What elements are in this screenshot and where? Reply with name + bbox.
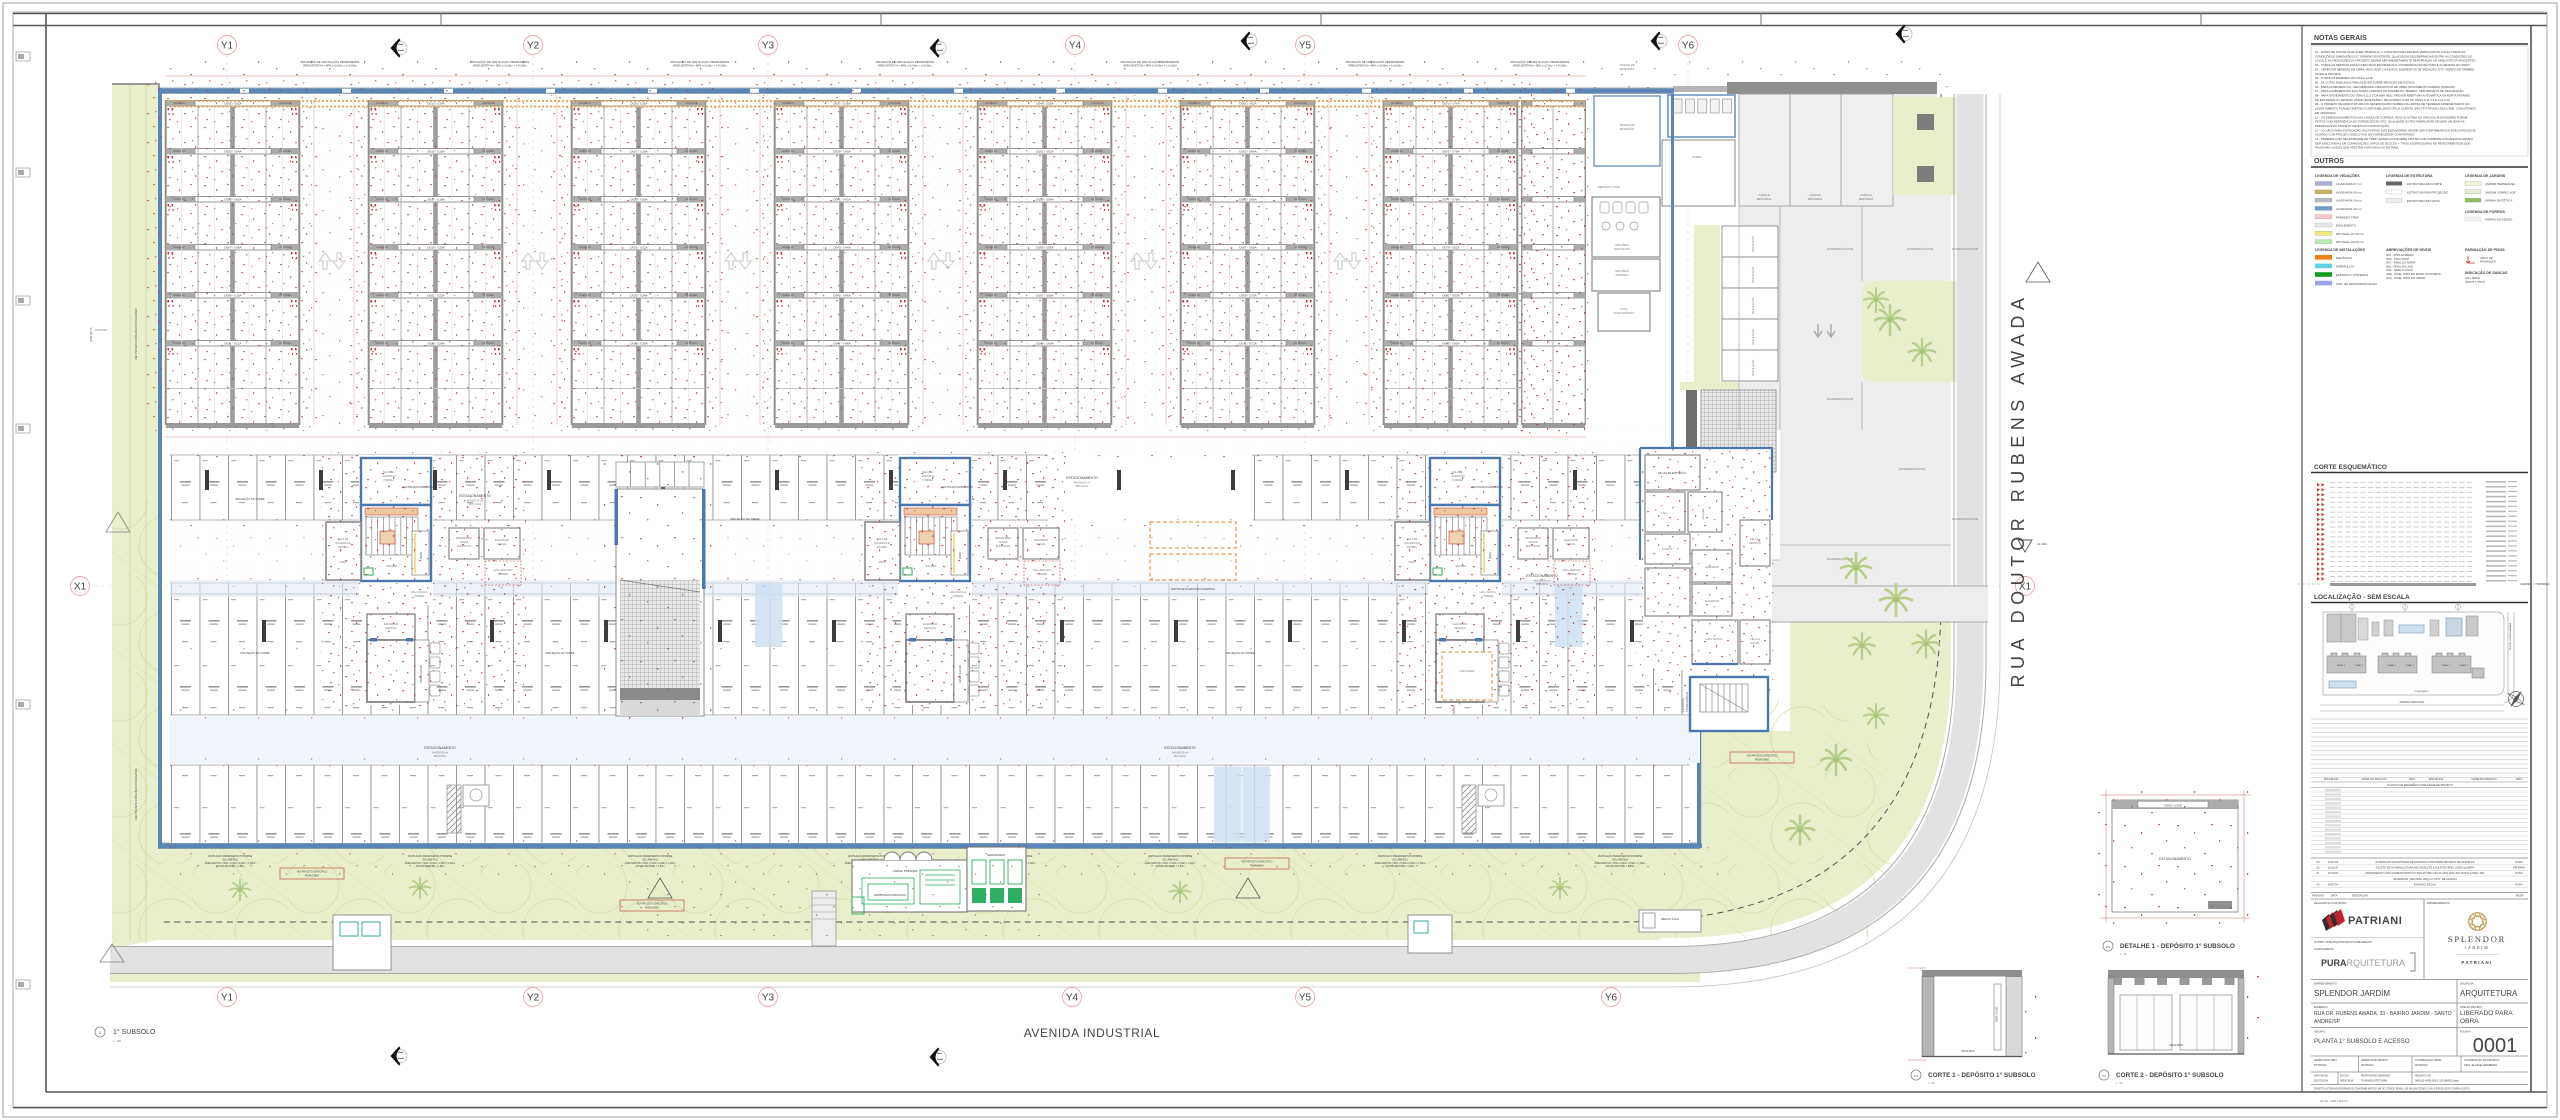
- svg-text:AVENIDA INDUSTRIAL: AVENIDA INDUSTRIAL: [1024, 1026, 1161, 1040]
- svg-text:20/07/2024: 20/07/2024: [2314, 1079, 2328, 1083]
- svg-text:D065 / U66A: D065 / U66A: [1239, 198, 1256, 202]
- svg-text:ESTACIONAMENTO: ESTACIONAMENTO: [1164, 746, 1196, 750]
- svg-text:D075 / U76A: D075 / U76A: [1442, 150, 1459, 154]
- svg-text:ESTACIONAMENTO: ESTACIONAMENTO: [424, 746, 456, 750]
- svg-text:(NM) - NÍVEL TOPO DO MURO OU M: (NM) - NÍVEL TOPO DO MURO OU MURETA: [2386, 272, 2441, 276]
- svg-text:N=1660,00 m²: N=1660,00 m²: [432, 750, 449, 754]
- svg-text:D045 / U46A: D045 / U46A: [833, 294, 850, 298]
- svg-text:SIST. DE DESUMIDIFICAÇÃO: SIST. DE DESUMIDIFICAÇÃO: [2336, 281, 2378, 286]
- svg-text:MASCULINO: MASCULINO: [1614, 247, 1629, 251]
- svg-text:A1 1000: A1 1000: [2037, 542, 2047, 546]
- svg-text:DATA INICIAL: DATA INICIAL: [2314, 1075, 2329, 1078]
- svg-text:D063 / U64A: D063 / U64A: [1239, 150, 1256, 154]
- svg-text:DESCARGA: DESCARGA: [1757, 197, 1772, 201]
- svg-text:RUA DR. RUBENS AWADA, 33 - BAI: RUA DR. RUBENS AWADA, 33 - BAIRRO JARDIM…: [2314, 1011, 2452, 1017]
- svg-text:D033 / U34A: D033 / U34A: [630, 294, 647, 298]
- svg-text:ELÉTRICA / SISTEMAS: ELÉTRICA / SISTEMAS: [2336, 272, 2368, 277]
- svg-text:Y3: Y3: [762, 993, 775, 1004]
- svg-text:RESPONSÁVEL/DESENHO: RESPONSÁVEL/DESENHO: [2361, 1075, 2390, 1078]
- svg-text:(NT) - NÍVEL DA TERRA: (NT) - NÍVEL DA TERRA: [2386, 261, 2416, 265]
- svg-text:N=1660,00 m²: N=1660,00 m²: [1172, 750, 1189, 754]
- svg-text:CARGA E: CARGA E: [1809, 193, 1821, 197]
- svg-text:0001: 0001: [2473, 1035, 2518, 1057]
- svg-text:Y5: Y5: [1299, 993, 1312, 1004]
- svg-text:FINAL 2: FINAL 2: [2355, 664, 2364, 667]
- svg-text:05 - AS COTAS INDICADAS PREVAL: 05 - AS COTAS INDICADAS PREVALECEM SOBRE…: [2315, 79, 2415, 84]
- svg-text:(NG) - NÍVEL TOPO DO GRADIL: (NG) - NÍVEL TOPO DO GRADIL: [2386, 276, 2426, 280]
- svg-text:D031 / U32A: D031 / U32A: [630, 246, 647, 250]
- svg-text:DATA: DATA: [2409, 777, 2416, 781]
- svg-text:1 : 100: 1 : 100: [113, 1039, 121, 1043]
- svg-text:OUTROS: OUTROS: [2314, 158, 2344, 165]
- svg-text:08 - PARA ATENDIMENTO DO ITEM: 08 - PARA ATENDIMENTO DO ITEM 6.11.2.2 D…: [2315, 93, 2470, 98]
- svg-text:AUTORIA: WISE ARQUITETURA E P: AUTORIA: WISE ARQUITETURA E PLANEJAMENTO: [2314, 941, 2372, 944]
- svg-text:EMPREENDIMENTO: EMPREENDIMENTO: [2427, 902, 2450, 905]
- svg-text:SPLENDOR JARDIM: SPLENDOR JARDIM: [2314, 989, 2390, 998]
- svg-text:CARGA E: CARGA E: [1860, 193, 1872, 197]
- svg-text:D035 / U36A: D035 / U36A: [630, 342, 647, 346]
- svg-text:PLANTA 1° SUBSOLO E ACESSO: PLANTA 1° SUBSOLO E ACESSO: [2314, 1038, 2410, 1045]
- svg-text:ANDRÉ/SP: ANDRÉ/SP: [2314, 1018, 2341, 1025]
- svg-text:D017 / U18A: D017 / U18A: [427, 198, 444, 202]
- svg-text:DISCIPLINA: DISCIPLINA: [2460, 983, 2474, 986]
- svg-text:D053 / U54A: D053 / U54A: [1036, 198, 1053, 202]
- svg-text:ARQ. ELAINE GRINBERG: ARQ. ELAINE GRINBERG: [2464, 1063, 2497, 1067]
- svg-text:D041 / U42A: D041 / U42A: [833, 198, 850, 202]
- svg-text:D025 / U26A: D025 / U26A: [630, 102, 647, 106]
- svg-text:COORDENAÇÃO DA DISCIPLINA: COORDENAÇÃO DA DISCIPLINA: [2464, 1059, 2500, 1062]
- svg-text:DESCARGA: DESCARGA: [1808, 197, 1823, 201]
- svg-text:PURA: PURA: [2515, 871, 2523, 875]
- svg-text:C2: C2: [2102, 1074, 2106, 1078]
- svg-text:(NL) - NÍVEL DA LAJE: (NL) - NÍVEL DA LAJE: [2386, 264, 2413, 268]
- svg-text:PAREDES TRNF: PAREDES TRNF: [2336, 215, 2359, 219]
- svg-text:D019 / U20A: D019 / U20A: [427, 246, 444, 250]
- svg-text:ARQUIVO CAD: ARQUIVO CAD: [2415, 1075, 2431, 1078]
- svg-text:Y2: Y2: [527, 993, 540, 1004]
- svg-text:PATRIANI: PATRIANI: [2361, 1063, 2374, 1067]
- svg-text:JARDIM SOBRE LAJE: JARDIM SOBRE LAJE: [2485, 190, 2516, 194]
- svg-text:PD=3,10m: PD=3,10m: [1174, 754, 1186, 758]
- svg-text:D039 / U40A: D039 / U40A: [833, 150, 850, 154]
- svg-text:D029 / U30A: D029 / U30A: [630, 198, 647, 202]
- svg-text:03 - VERIFICAR MEDIDAS EM OBRA: 03 - VERIFICAR MEDIDAS EM OBRA, INCLUSIV…: [2315, 66, 2474, 71]
- svg-text:ENCHIMENTO: ENCHIMENTO: [2336, 224, 2357, 228]
- svg-text:(largura x altura): (largura x altura): [2465, 280, 2485, 284]
- svg-text:FUNCIONÁRIOS: FUNCIONÁRIOS: [1614, 311, 1634, 315]
- svg-text:ESTRUTURA EM CORTE: ESTRUTURA EM CORTE: [2407, 182, 2442, 186]
- svg-text:D003 / U04A: D003 / U04A: [224, 150, 241, 154]
- svg-text:PATRIANI: PATRIANI: [2415, 1063, 2428, 1067]
- svg-text:07/10/24: 07/10/24: [2328, 871, 2339, 875]
- svg-text:EMPREENDIMENTO: EMPREENDIMENTO: [2314, 983, 2337, 986]
- svg-text:D009 / U10A: D009 / U10A: [224, 294, 241, 298]
- svg-text:A0 zap - 1682 x 841mm: A0 zap - 1682 x 841mm: [2320, 1099, 2348, 1103]
- svg-text:Y6: Y6: [1682, 41, 1695, 52]
- svg-text:DRYWALL 09,20 cm: DRYWALL 09,20 cm: [2336, 240, 2364, 244]
- svg-text:(PO) - PISO OSSO: (PO) - PISO OSSO: [2386, 257, 2409, 261]
- svg-text:PREMISSAS DO PROJETO ANTES DA: PREMISSAS DO PROJETO ANTES DA CONTRATAÇÃ…: [2315, 123, 2390, 128]
- svg-text:Y1: Y1: [221, 993, 234, 1004]
- svg-text:02: 02: [2317, 866, 2320, 870]
- svg-text:Y5: Y5: [1299, 41, 1312, 52]
- svg-text:NOME DO ARQUIVO: NOME DO ARQUIVO: [2472, 777, 2497, 781]
- svg-text:ALVENARIA 19 cm: ALVENARIA 19 cm: [2336, 207, 2362, 211]
- svg-text:ÁREA EFETIVA = MÍN L=2,60m + L: ÁREA EFETIVA = MÍN L=2,60m + L=2,60m: [673, 64, 727, 68]
- svg-text:Y4: Y4: [1066, 993, 1079, 1004]
- svg-text:FOLHA Nº: FOLHA Nº: [2460, 1030, 2471, 1034]
- svg-text:HIDRÁULICA: HIDRÁULICA: [2336, 265, 2354, 269]
- svg-text:DRYWALL 07,20 cm: DRYWALL 07,20 cm: [2336, 232, 2364, 236]
- svg-text:D001 / U02A: D001 / U02A: [224, 102, 241, 106]
- svg-text:LEGENDA DE VEDAÇÕES: LEGENDA DE VEDAÇÕES: [2315, 173, 2360, 178]
- svg-text:D067 / U68A: D067 / U68A: [1239, 246, 1256, 250]
- svg-text:FINAL 2: FINAL 2: [2460, 664, 2469, 667]
- svg-text:11/01/25: 11/01/25: [2328, 866, 2339, 870]
- svg-text:VESTIÁRIO: VESTIÁRIO: [1615, 269, 1629, 273]
- svg-text:ENDEREÇO: ENDEREÇO: [2314, 1006, 2328, 1009]
- svg-text:04 - TODAS AS PAREDES VÃO ATÉ: 04 - TODAS AS PAREDES VÃO ATÉ A LAJE.: [2315, 75, 2374, 80]
- svg-text:FINAL 1: FINAL 1: [2388, 664, 2397, 667]
- svg-text:11 - OS VÃOS PARA INSTALAÇÃO D: 11 - OS VÃOS PARA INSTALAÇÃO DAS PORTAS …: [2315, 127, 2476, 132]
- svg-text:PURA: PURA: [2515, 882, 2523, 886]
- svg-text:FORRO DE GESSO: FORRO DE GESSO: [2485, 218, 2513, 222]
- svg-text:ÁREA EFETIVA = MÍN L=2,60m + L: ÁREA EFETIVA = MÍN L=2,60m + L=2,60m: [473, 64, 527, 68]
- svg-text:D073 / U74A: D073 / U74A: [1442, 102, 1459, 106]
- svg-text:PURA: PURA: [2515, 860, 2523, 864]
- svg-text:DIREITOS AUTORAIS RESERVADOS C: DIREITOS AUTORAIS RESERVADOS CONFORME AR…: [2314, 1088, 2471, 1091]
- svg-text:VESTIÁRIO: VESTIÁRIO: [1615, 243, 1629, 247]
- svg-text:Y4: Y4: [1069, 41, 1082, 52]
- svg-text:ASSUNTO: ASSUNTO: [2314, 1031, 2326, 1034]
- svg-text:RUA DR. RUBENS AWADA: RUA DR. RUBENS AWADA: [2509, 623, 2512, 650]
- svg-text:ALVENARIA 14 cm: ALVENARIA 14 cm: [2336, 199, 2362, 203]
- svg-text:D057 / U58A: D057 / U58A: [1036, 294, 1053, 298]
- svg-text:A/4 e 900x/h: A/4 e 900x/h: [2465, 276, 2481, 280]
- svg-text:CONDOMÍNIO: CONDOMÍNIO: [2414, 690, 2429, 693]
- svg-text:VAGA BOX: VAGA BOX: [2169, 1043, 2183, 1047]
- svg-text:D049 / U50A: D049 / U50A: [1036, 102, 1053, 106]
- svg-text:REALIZADO E CONSTRUÍDO: REALIZADO E CONSTRUÍDO: [2314, 902, 2347, 905]
- svg-text:D083 / U05A: D083 / U05A: [1442, 342, 1459, 346]
- svg-text:VER PROJETO ESPECÍFICO PAISAGI: VER PROJETO ESPECÍFICO PAISAGISMO: [134, 768, 138, 820]
- svg-text:ÁREA EFETIVA = MÍN L=2,60m + L: ÁREA EFETIVA = MÍN L=2,60m + L=2,60m: [1348, 64, 1402, 68]
- svg-text:FINAL 1: FINAL 1: [2442, 664, 2451, 667]
- svg-text:D055 / U56A: D055 / U56A: [1036, 246, 1053, 250]
- svg-text:NOTAS GERAIS: NOTAS GERAIS: [2314, 35, 2367, 42]
- svg-text:SPLENDOR: SPLENDOR: [2448, 934, 2506, 944]
- svg-text:FASE DO PROJETO: FASE DO PROJETO: [2460, 1006, 2482, 1009]
- svg-text:CORTE ESQUEMÁTICO: CORTE ESQUEMÁTICO: [2314, 462, 2387, 471]
- svg-text:D071 / U72A: D071 / U72A: [1239, 342, 1256, 346]
- svg-text:LEVANTAMENTO PLANALTIMÉTRICO D: LEVANTAMENTO PLANALTIMÉTRICO DISPONIBILI…: [2315, 106, 2477, 111]
- svg-text:D007 / U08A: D007 / U08A: [224, 246, 241, 250]
- svg-text:PURARQUITETURA: PURARQUITETURA: [2361, 1079, 2387, 1083]
- svg-text:1° SUBSOLO: 1° SUBSOLO: [113, 1028, 156, 1036]
- svg-text:AVENIDA INDUSTRIAL: AVENIDA INDUSTRIAL: [2399, 701, 2425, 704]
- svg-text:Y3: Y3: [762, 41, 775, 52]
- svg-text:FINAL 2: FINAL 2: [2406, 664, 2415, 667]
- svg-text:PATRIANI: PATRIANI: [2461, 960, 2492, 965]
- svg-text:LEGENDA DE FORROS: LEGENDA DE FORROS: [2465, 210, 2505, 214]
- svg-text:D043 / U44A: D043 / U44A: [833, 246, 850, 250]
- svg-text:LICENCIAMENTO: LICENCIAMENTO: [2314, 948, 2334, 951]
- svg-text:OBRA: OBRA: [2460, 1018, 2479, 1025]
- svg-text:ESTRUTURA EM VISTA: ESTRUTURA EM VISTA: [2407, 199, 2440, 203]
- svg-text:PD=3,10m: PD=3,10m: [434, 754, 446, 758]
- svg-text:ESTRUTURA EM PROJEÇÃO: ESTRUTURA EM PROJEÇÃO: [2407, 190, 2449, 195]
- svg-text:(PA) - PISO ACABADO: (PA) - PISO ACABADO: [2386, 253, 2414, 257]
- svg-text:CORTE 1 - DEPÓSITO 1° SUBSOLO: CORTE 1 - DEPÓSITO 1° SUBSOLO: [1928, 1070, 2036, 1079]
- svg-text:FEITOS COM REFERÊNCIA NO FORNE: FEITOS COM REFERÊNCIA NO FORNECEDOR OTIS…: [2315, 119, 2464, 124]
- svg-text:1 : 50: 1 : 50: [1928, 1081, 1935, 1085]
- svg-text:ÁREA EFETIVA = MÍN L=2,60m + L: ÁREA EFETIVA = MÍN L=2,60m + L=2,60m: [303, 64, 357, 68]
- svg-text:D077 / U78A: D077 / U78A: [1442, 198, 1459, 202]
- svg-text:RUA DOUTOR RUBENS AWADA: RUA DOUTOR RUBENS AWADA: [2008, 293, 2028, 688]
- svg-text:DESCARGA: DESCARGA: [1859, 197, 1874, 201]
- svg-text:D027 / U28A: D027 / U28A: [630, 150, 647, 154]
- svg-text:GRAMA SINTÉTICA: GRAMA SINTÉTICA: [2485, 198, 2512, 203]
- svg-text:D040 / U21B: D040 / U21B: [1995, 1007, 1999, 1022]
- svg-text:D021 / U22A: D021 / U22A: [427, 294, 444, 298]
- svg-text:(NA) - NÍVEL D´ÁGUA: (NA) - NÍVEL D´ÁGUA: [2386, 268, 2413, 272]
- svg-text:CORTE 2 - DEPÓSITO 1° SUBSOLO: CORTE 2 - DEPÓSITO 1° SUBSOLO: [2116, 1070, 2224, 1079]
- svg-text:ESCADA DE: ESCADA DE: [1682, 698, 1685, 712]
- svg-text:D079 / U01A: D079 / U01A: [1442, 246, 1459, 250]
- svg-text:(NM) 745,75: (NM) 745,75: [89, 327, 93, 342]
- svg-text:D051 / U52A: D051 / U52A: [1036, 150, 1053, 154]
- svg-text:ARQUITETURA: ARQUITETURA: [2460, 989, 2518, 998]
- svg-text:LOCAL E AS INDICAÇÕES DO PROJE: LOCAL E AS INDICAÇÕES DO PROJETO DEVEM S…: [2315, 58, 2476, 63]
- svg-text:ABREVIAÇÕES DE NÍVEIS: ABREVIAÇÕES DE NÍVEIS: [2386, 247, 2432, 252]
- svg-text:FINAL 1: FINAL 1: [2337, 664, 2346, 667]
- svg-text:06 - PARA ACABAMENTOS, VER MEM: 06 - PARA ACABAMENTOS, VER MEMORIAL DESC…: [2315, 84, 2456, 89]
- svg-text:D1: D1: [2106, 945, 2110, 949]
- svg-text:00: 00: [2317, 882, 2320, 886]
- svg-text:N=1660,00 m²: N=1660,00 m²: [1074, 480, 1091, 484]
- svg-text:Y2: Y2: [527, 41, 540, 52]
- svg-text:JARDIM PERMEÁVEL: JARDIM PERMEÁVEL: [2485, 182, 2516, 186]
- svg-text:040-LD-ARQ-0001-1SUB-R05.dwg: 040-LD-ARQ-0001-1SUB-R05.dwg: [2415, 1079, 2459, 1083]
- svg-text:DATA: DATA: [2516, 777, 2523, 781]
- svg-text:AJUSTE DE NOMENCLATURA DE CAVA: AJUSTE DE NOMENCLATURA DE CAVALETE E AJU…: [2376, 866, 2475, 870]
- svg-text:PURARQUITETURA: PURARQUITETURA: [2321, 958, 2405, 968]
- svg-text:FEMININO: FEMININO: [1616, 273, 1629, 277]
- svg-text:COORDENAÇÃO GERAL: COORDENAÇÃO GERAL: [2415, 1059, 2442, 1062]
- svg-text:ESTACIONAMENTO: ESTACIONAMENTO: [1066, 476, 1098, 480]
- svg-text:D059 / U60A: D059 / U60A: [1036, 342, 1053, 346]
- svg-text:1 : 50: 1 : 50: [2120, 952, 2127, 956]
- svg-text:DISCIPLINA: DISCIPLINA: [2429, 777, 2444, 781]
- svg-text:NOME DO ARQUIVO: NOME DO ARQUIVO: [2362, 777, 2387, 781]
- svg-text:CONDIÇÕES E DIMENSÕES DO TERRE: CONDIÇÕES E DIMENSÕES DO TERRENO EXISTEN…: [2315, 53, 2473, 58]
- svg-text:GERÊNCIA DE OBRA: GERÊNCIA DE OBRA: [2314, 1059, 2337, 1062]
- svg-text:PATRIANI: PATRIANI: [2348, 915, 2402, 927]
- svg-text:X1: X1: [74, 582, 87, 593]
- svg-text:01: 01: [2317, 871, 2320, 875]
- svg-text:DETALHE 1 - DEPÓSITO 1° SUBSOL: DETALHE 1 - DEPÓSITO 1° SUBSOLO: [2120, 941, 2235, 950]
- svg-text:LIBERADO PARA: LIBERADO PARA: [2460, 1010, 2513, 1017]
- svg-text:LIXEIRA: LIXEIRA: [1692, 155, 1702, 159]
- svg-text:PAGINAÇÃO DE PISOS: PAGINAÇÃO DE PISOS: [2465, 247, 2505, 252]
- svg-text:LEGENDA DE JARDINS: LEGENDA DE JARDINS: [2465, 174, 2506, 178]
- svg-text:ABRIGO ÁGUA: ABRIGO ÁGUA: [1661, 917, 1679, 921]
- svg-text:DATA: DATA: [2331, 894, 2338, 898]
- svg-text:D013 / U14A: D013 / U14A: [427, 102, 444, 106]
- svg-text:D081 / U03A: D081 / U03A: [1442, 294, 1459, 298]
- svg-text:PAISAGISMO: PAISAGISMO: [1755, 759, 1769, 762]
- svg-text:D047 / U48A: D047 / U48A: [833, 342, 850, 346]
- svg-text:ÁREA EFETIVA = MÍN L=2,60m + L: ÁREA EFETIVA = MÍN L=2,60m + L=2,60m: [878, 64, 932, 68]
- svg-text:24/07/24: 24/07/24: [2328, 882, 2339, 886]
- svg-text:PD=3,10m: PD=3,10m: [1076, 484, 1088, 488]
- svg-text:INDICADA: INDICADA: [2340, 1079, 2353, 1083]
- svg-text:D011 / U12A: D011 / U12A: [225, 342, 242, 346]
- svg-text:LEGENDA DE ESTRUTURA: LEGENDA DE ESTRUTURA: [2386, 174, 2433, 178]
- svg-text:RESP.: RESP.: [2516, 894, 2524, 898]
- svg-text:TRANSFERÊNCIA: TRANSFERÊNCIA: [1686, 691, 1689, 712]
- svg-text:01/07/25: 01/07/25: [2328, 860, 2339, 864]
- svg-text:D069 / U70A: D069 / U70A: [1239, 294, 1256, 298]
- svg-text:VAGA BOX: VAGA BOX: [1961, 1049, 1975, 1053]
- svg-text:GERÊNCIA DE PROJETO: GERÊNCIA DE PROJETO: [2361, 1059, 2388, 1062]
- svg-text:1 : 50: 1 : 50: [2116, 1081, 2123, 1085]
- svg-text:12 - PAREDES COM NECESSIDADE D: 12 - PAREDES COM NECESSIDADE DE TRRF>120…: [2315, 136, 2473, 141]
- svg-text:CAR CLEAN: CAR CLEAN: [1460, 669, 1475, 673]
- svg-text:ALVENARIA 07 cm: ALVENARIA 07 cm: [2336, 182, 2362, 186]
- svg-text:PATRIANI: PATRIANI: [2513, 866, 2525, 870]
- svg-text:D061 / U62A: D061 / U62A: [1239, 102, 1256, 106]
- svg-text:PATRIANI: PATRIANI: [2314, 1063, 2327, 1067]
- svg-text:TANQUE DE: TANQUE DE: [1620, 123, 1635, 127]
- svg-text:SER EXECUTADAS EM COMPOSIÇÕES: SER EXECUTADAS EM COMPOSIÇÕES (TIPOS DE …: [2315, 140, 2470, 145]
- svg-text:INÍCIO DE: INÍCIO DE: [2480, 256, 2493, 260]
- svg-text:Y1: Y1: [221, 41, 234, 52]
- svg-text:VER PROJETO ESPECÍFICO: VER PROJETO ESPECÍFICO: [1747, 755, 1778, 758]
- svg-text:LOCALIZAÇÃO - SEM ESCALA: LOCALIZAÇÃO - SEM ESCALA: [2314, 592, 2410, 601]
- svg-text:D005 / U06A: D005 / U06A: [224, 198, 241, 202]
- svg-text:C1: C1: [1914, 1074, 1918, 1078]
- svg-text:ÁREA EFETIVA = MÍN L=2,60m + L: ÁREA EFETIVA = MÍN L=2,60m + L=2,60m: [1123, 64, 1177, 68]
- svg-text:Y6: Y6: [1605, 993, 1618, 1004]
- svg-text:03: 03: [2317, 860, 2320, 864]
- svg-text:POSSUAM LAUDOS QUE ATESTEM A E: POSSUAM LAUDOS QUE ATESTEM A EFICÁCIA DO…: [2315, 146, 2399, 150]
- svg-text:TANQUE DE: TANQUE DE: [1620, 63, 1635, 67]
- svg-text:ALVENARIA 09 cm: ALVENARIA 09 cm: [2336, 190, 2362, 194]
- svg-text:COPA: COPA: [1620, 307, 1627, 311]
- svg-text:D037 / U38A: D037 / U38A: [833, 102, 850, 106]
- svg-text:INDICAÇÃO DE SANCAS: INDICAÇÃO DE SANCAS: [2465, 270, 2508, 275]
- svg-text:02 - TODAS AS MEDIDAS ESTÃO IN: 02 - TODAS AS MEDIDAS ESTÃO INDICADAS EM…: [2315, 62, 2471, 67]
- svg-text:JARDIM: JARDIM: [2465, 945, 2490, 950]
- svg-text:ÁREA EFETIVA = MÍN L=2,60m + L: ÁREA EFETIVA = MÍN L=2,60m + L=2,60m: [1513, 64, 1567, 68]
- svg-text:D015 / U16A: D015 / U16A: [427, 150, 444, 154]
- svg-text:07 - PARA ACABAMENTOS DAS ÁREA: 07 - PARA ACABAMENTOS DAS ÁREAS COMUNS D…: [2315, 88, 2465, 93]
- svg-text:VER PROJETO ESPECÍFICO ELÉTRIC: VER PROJETO ESPECÍFICO ELÉTRICA: [1171, 588, 1216, 591]
- svg-text:CARGA E: CARGA E: [1758, 193, 1770, 197]
- svg-text:LEGENDA DE INSTALAÇÕES: LEGENDA DE INSTALAÇÕES: [2315, 247, 2366, 252]
- svg-text:MECÂNICA: MECÂNICA: [2336, 255, 2352, 260]
- svg-text:DISCIPLINA: DISCIPLINA: [2324, 777, 2339, 781]
- svg-text:ESCALA: ESCALA: [2340, 1075, 2350, 1078]
- svg-text:D023 / U24A: D023 / U24A: [427, 342, 444, 346]
- svg-text:VER PROJETO ESPECÍFICO PAISAGI: VER PROJETO ESPECÍFICO PAISAGISMO: [134, 308, 138, 360]
